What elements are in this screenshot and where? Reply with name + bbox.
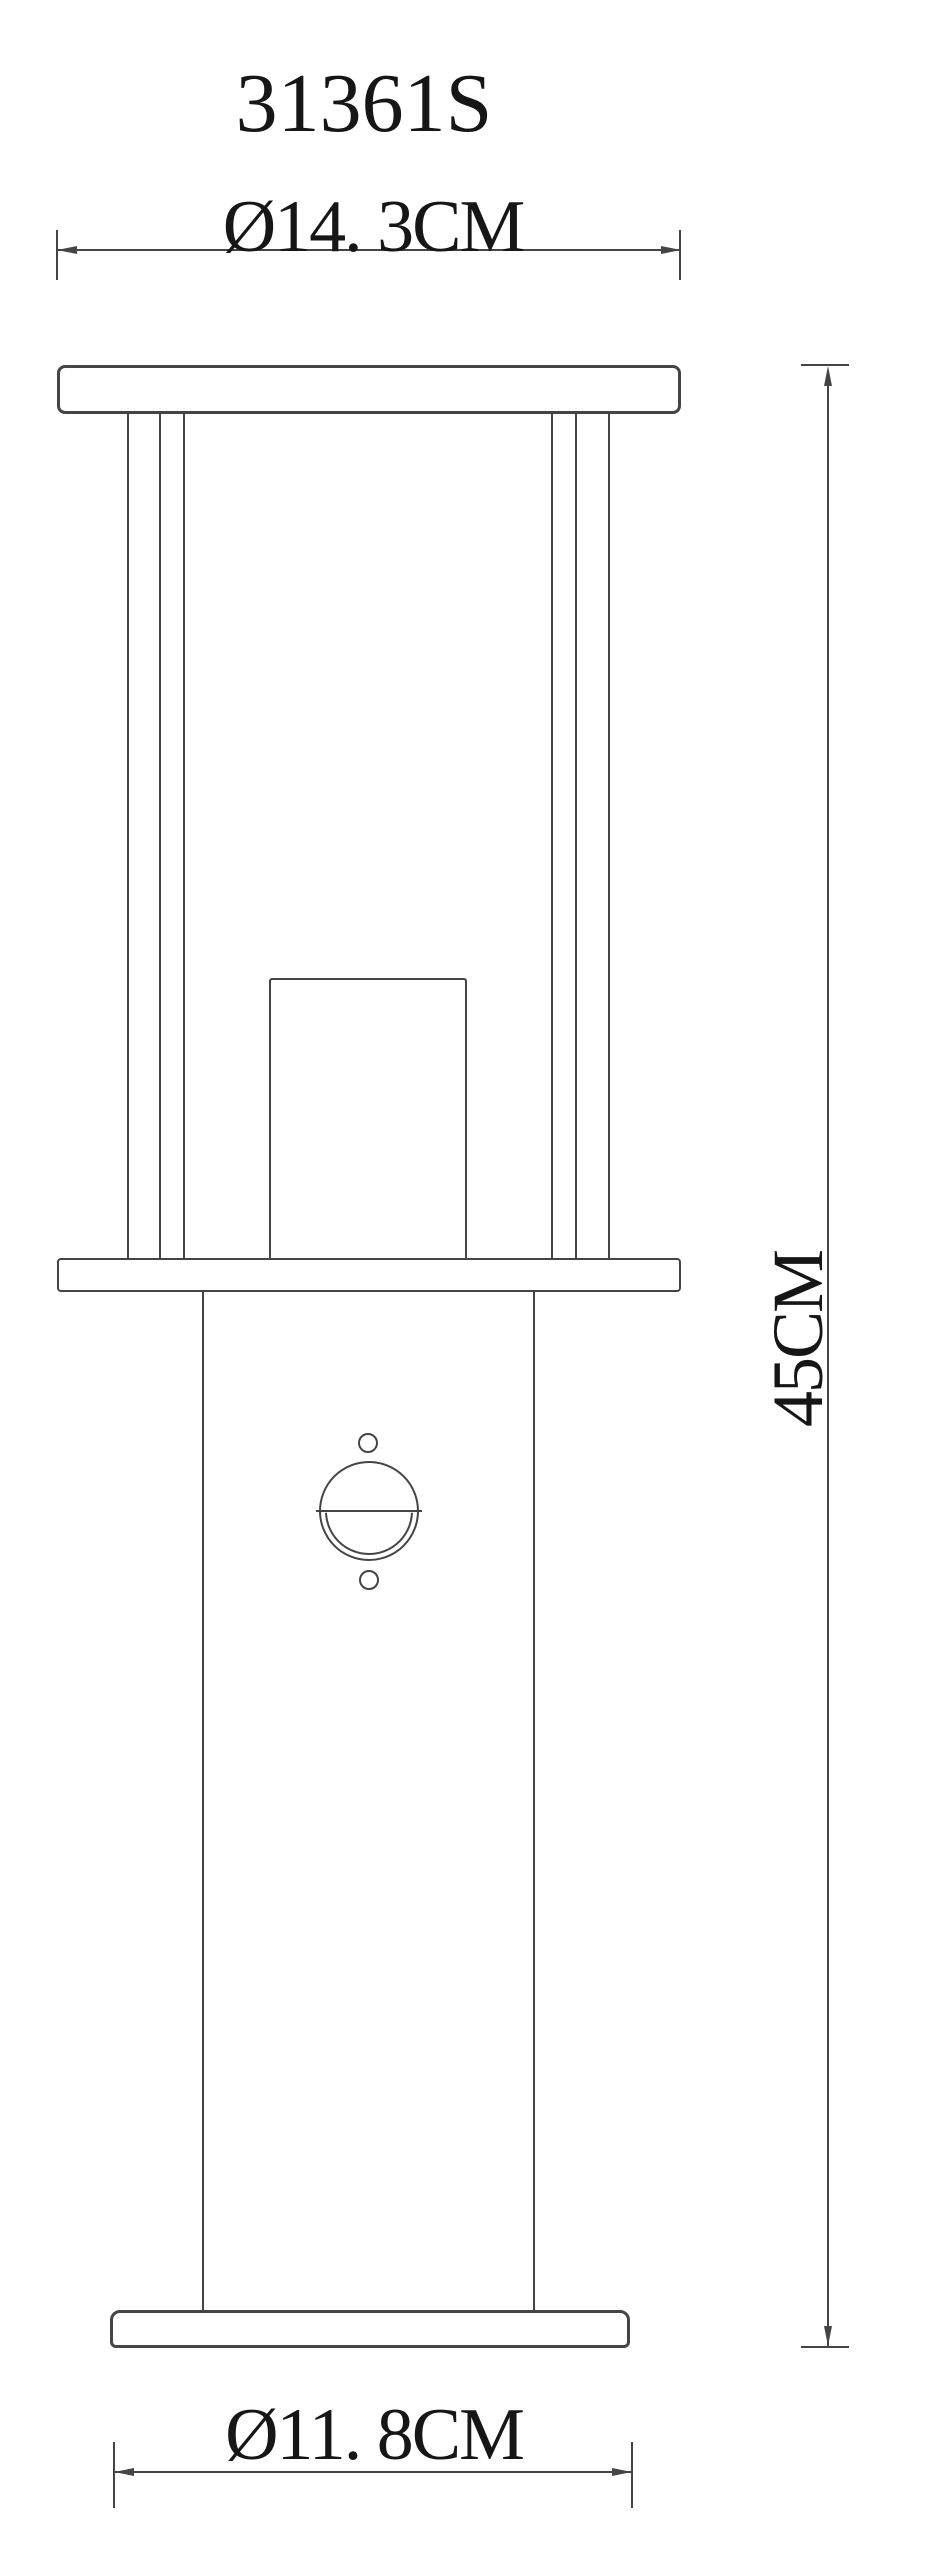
lamp-middle-band	[57, 1258, 681, 1292]
top-diameter-label: Ø14. 3CM	[193, 190, 553, 264]
glass-outline-left	[127, 414, 129, 1258]
sensor-screw-bottom	[359, 1570, 379, 1590]
base-diameter-label: Ø11. 8CM	[194, 2398, 554, 2472]
height-dim-arrow-up-icon	[824, 366, 832, 386]
top-dim-arrow-left-icon	[57, 246, 77, 254]
top-dim-extension-tick-left	[56, 230, 58, 280]
height-dim-tick-bottom	[801, 2346, 849, 2348]
inner-lamp-tube	[269, 978, 467, 1258]
top-dim-extension-tick-right	[679, 230, 681, 280]
technical-drawing-page: 31361S Ø14. 3CM 45CM Ø11. 8CM	[0, 0, 931, 2560]
height-label: 45CM	[762, 1267, 834, 1427]
model-number-title: 31361S	[184, 62, 544, 146]
cage-bar-right	[551, 414, 577, 1258]
base-dim-arrow-left-icon	[114, 2468, 134, 2476]
top-dim-arrow-right-icon	[661, 246, 681, 254]
base-dim-arrow-right-icon	[612, 2468, 632, 2476]
motion-sensor-split-line	[316, 1510, 422, 1512]
cage-bar-left	[159, 414, 185, 1258]
base-dim-line	[114, 2471, 632, 2473]
base-plate	[110, 2310, 630, 2348]
height-dim-arrow-down-icon	[824, 2326, 832, 2346]
glass-outline-right	[608, 414, 610, 1258]
lamp-top-cap	[57, 365, 681, 414]
sensor-screw-top	[358, 1433, 378, 1453]
